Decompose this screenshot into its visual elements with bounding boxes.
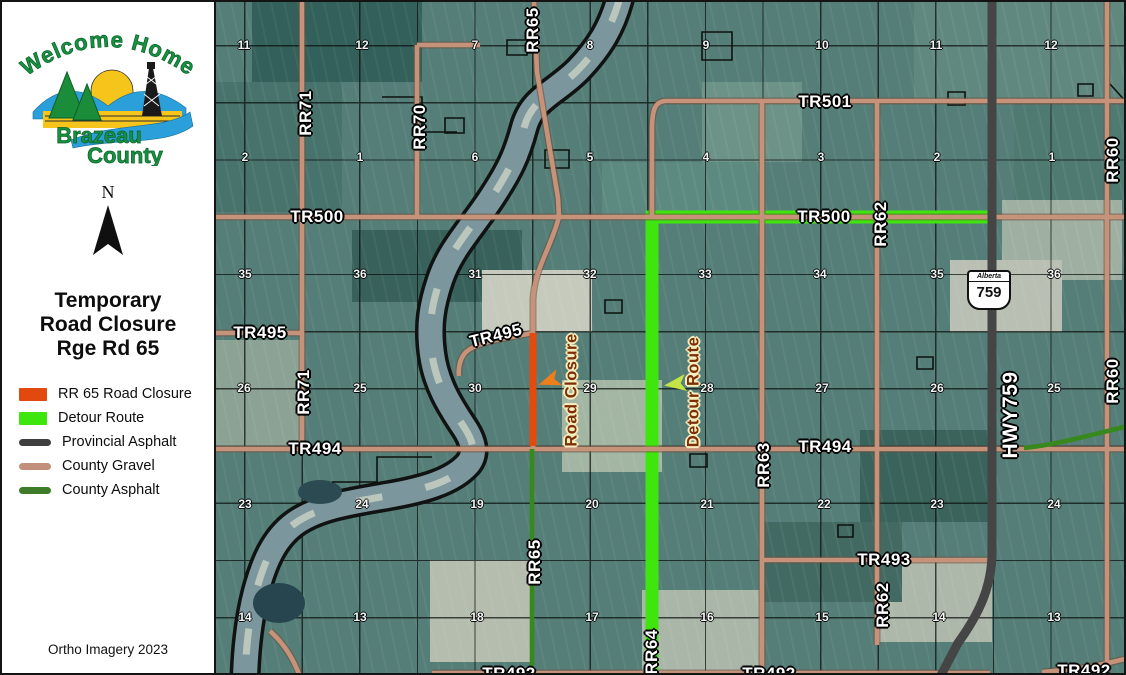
section-number: 11 [238,38,251,52]
detour-route-arrow-icon [663,374,687,394]
section-number: 33 [698,267,711,281]
legend-item-detour-route: Detour Route [19,406,192,430]
road-label-rr64: RR64 [642,629,662,674]
road-label-tr500: TR500 [290,207,344,227]
section-number: 3 [818,150,825,164]
section-number: 11 [930,38,943,52]
section-number: 24 [1047,497,1060,511]
legend-label: Provincial Asphalt [62,434,176,450]
road-label-tr493: TR493 [857,550,911,570]
road-label-rr63: RR63 [754,442,774,487]
section-number: 27 [815,381,828,395]
section-number: 8 [587,38,594,52]
title-line-2: Road Closure [2,313,214,337]
section-number: 30 [468,381,481,395]
section-number: 15 [815,610,828,624]
section-number: 35 [238,267,251,281]
road-label-tr492: TR492 [742,664,796,675]
section-number: 19 [470,497,483,511]
road-label-tr492: TR492 [1057,661,1111,675]
legend-item-rr-65-road-closure: RR 65 Road Closure [19,382,192,406]
section-number: 35 [930,267,943,281]
section-number: 25 [353,381,366,395]
road-closure-map-document: Welcome Home Brazeau County N [0,0,1126,675]
page-title: Temporary Road Closure Rge Rd 65 [2,289,214,361]
section-number: 1 [357,150,364,164]
section-number: 7 [472,38,479,52]
shield-region-label: Alberta [969,272,1009,282]
section-number: 1 [1049,150,1056,164]
section-number: 36 [353,267,366,281]
highway-759-shield: Alberta 759 [967,270,1011,310]
road-label-rr65: RR65 [523,7,543,52]
section-number: 26 [237,381,250,395]
section-number: 24 [355,497,368,511]
road-label-rr62: RR62 [873,582,893,627]
title-line-3: Rge Rd 65 [2,337,214,361]
road-closure-arrow-icon [536,369,562,392]
brazeau-county-logo: Welcome Home Brazeau County [15,14,201,166]
info-panel: Welcome Home Brazeau County N [2,2,216,673]
section-number: 36 [1047,267,1060,281]
north-label: N [2,182,214,203]
section-number: 23 [238,497,251,511]
section-number: 31 [468,267,481,281]
section-number: 29 [583,381,596,395]
section-number: 14 [932,610,945,624]
section-number: 12 [355,38,368,52]
section-number: 10 [815,38,828,52]
road-label-rr71: RR71 [296,90,316,135]
road-label-rr60: RR60 [1103,137,1123,182]
section-number: 13 [1047,610,1060,624]
legend-swatch-rr-65-road-closure [19,388,47,401]
legend-item-county-asphalt: County Asphalt [19,478,192,502]
road-label-rr71: RR71 [294,369,314,414]
section-number: 12 [1044,38,1057,52]
section-number: 4 [703,150,710,164]
section-number: 21 [700,497,713,511]
logo-name-line2: County [87,143,164,166]
road-label-rr60: RR60 [1103,358,1123,403]
section-number: 26 [930,381,943,395]
section-number: 9 [703,38,710,52]
legend-label: Detour Route [58,410,144,426]
section-number: 22 [817,497,830,511]
north-arrow: N [2,182,214,257]
legend-swatch-provincial-asphalt [19,439,51,446]
road-label-tr494: TR494 [288,439,342,459]
legend: RR 65 Road ClosureDetour RouteProvincial… [19,382,192,502]
annotation-detour-route: Detour Route [685,337,704,448]
section-number: 14 [238,610,251,624]
section-number: 32 [583,267,596,281]
road-label-tr501: TR501 [798,92,852,112]
legend-item-county-gravel: County Gravel [19,454,192,478]
road-label-rr62: RR62 [871,201,891,246]
title-line-1: Temporary [2,289,214,313]
road-label-tr492: TR492 [482,664,536,675]
road-label-hwy759: HWY759 [999,371,1023,458]
road-label-tr494: TR494 [798,437,852,457]
road-label-rr65: RR65 [525,539,545,584]
section-number: 34 [813,267,826,281]
annotation-road-closure: Road Closure [563,333,582,446]
map-labels: TR501TR500TR500TR495TR495TR494TR494TR493… [214,2,1126,675]
map-canvas: TR501TR500TR500TR495TR495TR494TR494TR493… [214,2,1126,675]
legend-label: County Asphalt [62,482,160,498]
road-label-rr70: RR70 [410,104,430,149]
legend-label: RR 65 Road Closure [58,386,192,402]
section-number: 25 [1047,381,1060,395]
section-number: 17 [585,610,598,624]
legend-label: County Gravel [62,458,155,474]
legend-item-provincial-asphalt: Provincial Asphalt [19,430,192,454]
legend-swatch-detour-route [19,412,47,425]
section-number: 20 [585,497,598,511]
section-number: 13 [353,610,366,624]
road-label-tr500: TR500 [797,207,851,227]
legend-swatch-county-gravel [19,463,51,470]
section-number: 5 [587,150,594,164]
road-label-tr495: TR495 [468,320,525,352]
shield-number: 759 [969,282,1009,304]
section-number: 2 [934,150,941,164]
road-label-tr495: TR495 [233,323,287,343]
legend-swatch-county-asphalt [19,487,51,494]
section-number: 23 [930,497,943,511]
section-number: 16 [700,610,713,624]
section-number: 6 [472,150,479,164]
section-number: 18 [470,610,483,624]
imagery-credit: Ortho Imagery 2023 [2,642,214,657]
section-number: 2 [242,150,249,164]
north-arrow-icon [91,205,125,257]
